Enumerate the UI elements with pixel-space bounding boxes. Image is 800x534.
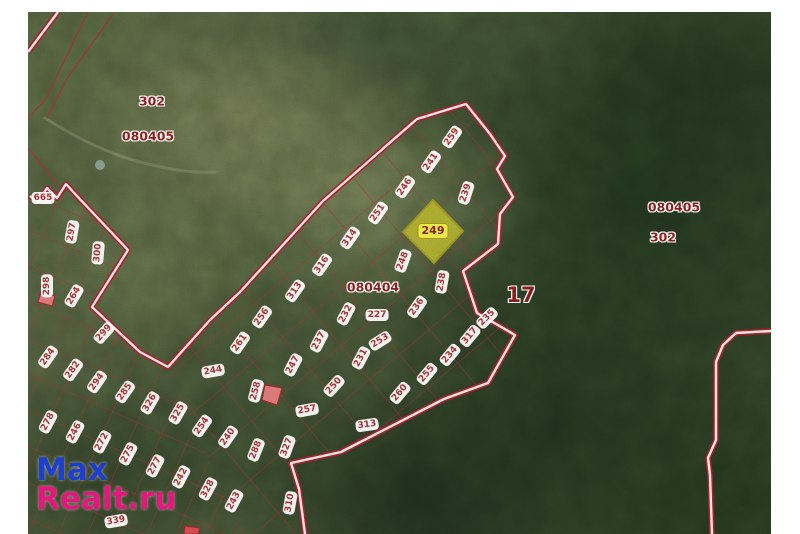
parcel-label-665: 665: [32, 192, 55, 204]
quarter-label-080404: 080404: [347, 280, 399, 295]
parcel-label-298: 298: [41, 275, 53, 298]
page: { "page": {"background": "#ffffff"}, "ma…: [0, 0, 800, 534]
grain-texture: [28, 12, 771, 534]
quarter-label-17: 17: [506, 283, 535, 307]
highlighted-parcel-label[interactable]: 249: [418, 223, 449, 239]
quarter-label-302: 302: [650, 230, 676, 245]
parcel-label-227: 227: [366, 309, 389, 321]
quarter-label-080405: 080405: [648, 200, 700, 215]
parcel-label-300: 300: [91, 241, 105, 265]
quarter-label-302: 302: [139, 94, 165, 109]
quarter-label-080405: 080405: [122, 129, 174, 144]
